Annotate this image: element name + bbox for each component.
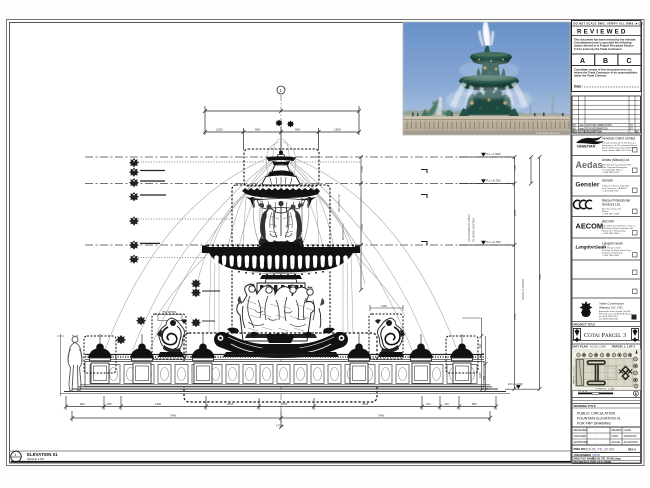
svg-text:0 5 10 20: 0 5 10 20	[578, 391, 588, 393]
svg-text:fax: (853) 2835 5052: fax: (853) 2835 5052	[599, 319, 619, 321]
svg-text:REV: REV	[573, 132, 578, 134]
svg-text:3150: 3150	[360, 223, 364, 230]
svg-text:DRAWN: DRAWN	[612, 428, 622, 432]
svg-text:C: C	[627, 58, 632, 65]
svg-text:7940: 7940	[378, 414, 385, 418]
svg-text:Venetian Orient Limited: Venetian Orient Limited	[602, 137, 635, 141]
svg-text:7900: 7900	[538, 273, 542, 280]
svg-text:5.4 for action by the Trade Co: 5.4 for action by the Trade Contractor.	[574, 47, 623, 51]
svg-text:17160: 17160	[276, 423, 284, 427]
svg-text:280: 280	[107, 402, 112, 406]
svg-text:KEY PLAN: KEY PLAN	[574, 345, 588, 349]
svg-text:1130: 1130	[479, 372, 482, 378]
svg-text:1200: 1200	[381, 304, 387, 308]
svg-text:CHECKED: CHECKED	[574, 434, 587, 438]
svg-text:SCALE 1:2000: SCALE 1:2000	[590, 346, 606, 349]
svg-text:1150: 1150	[360, 166, 364, 172]
svg-text:FRP FINISH TYP.: FRP FINISH TYP.	[339, 194, 341, 212]
svg-text:900: 900	[483, 375, 486, 380]
svg-text:FRP ORNAMENT FINISH: FRP ORNAMENT FINISH	[468, 214, 471, 242]
svg-text:(Macau) CO. LTD.: (Macau) CO. LTD.	[599, 306, 623, 310]
svg-text:10/04/2016: 10/04/2016	[624, 434, 638, 438]
svg-text:under the Trade Contract.: under the Trade Contract.	[574, 74, 607, 78]
svg-text:SCALE 1:50: SCALE 1:50	[27, 457, 44, 461]
svg-text:PUBLIC CIRCULATION: PUBLIC CIRCULATION	[577, 412, 615, 416]
svg-text:420: 420	[426, 402, 431, 406]
svg-text:BRONZE PAINT: BRONZE PAINT	[342, 223, 345, 240]
svg-text:Taipa, Macau SAR, P.R. China: Taipa, Macau SAR, P.R. China	[602, 149, 632, 152]
svg-text:JOB NUMBER: JOB NUMBER	[574, 453, 592, 457]
svg-text:2518: 2518	[281, 402, 288, 406]
svg-text:FOR INFORMATION: FOR INFORMATION	[586, 127, 608, 130]
svg-text:2000: 2000	[513, 209, 517, 216]
svg-text:1250: 1250	[334, 128, 341, 132]
svg-text:T.P.L +4,750: T.P.L +4,750	[484, 240, 501, 244]
svg-text:date: date	[579, 124, 584, 127]
svg-text:PROJECT TITLE: PROJECT TITLE	[574, 322, 596, 326]
svg-text:440: 440	[444, 402, 449, 406]
svg-text:REFERENCE DWG FILE NAME: REFERENCE DWG FILE NAME	[574, 460, 612, 464]
svg-text:2518: 2518	[227, 402, 234, 406]
svg-text:600: 600	[479, 343, 482, 348]
svg-text:© fountain reference: © fountain reference	[536, 131, 560, 135]
svg-text:AS SHOWN: AS SHOWN	[624, 440, 638, 444]
svg-text:SCALE: SCALE	[612, 440, 621, 444]
svg-text:PARCEL 1, LOT 1: PARCEL 1, LOT 1	[573, 366, 576, 384]
svg-text:GRAPHIC SCALE: GRAPHIC SCALE	[597, 387, 615, 390]
svg-text:APPROVED: APPROVED	[574, 440, 589, 444]
svg-text:CAHD: CAHD	[624, 428, 631, 432]
svg-text:-: -	[596, 429, 597, 432]
svg-text:TO MATCH EXISTING: TO MATCH EXISTING	[473, 218, 476, 242]
svg-text:t +853 2833 1022: t +853 2833 1022	[602, 171, 620, 174]
svg-text:t +853 2871 5339: t +853 2871 5339	[602, 213, 620, 216]
svg-text:A: A	[580, 58, 585, 65]
svg-text:600: 600	[80, 402, 85, 406]
svg-text:Aedas (Macau) Ltd.: Aedas (Macau) Ltd.	[602, 158, 630, 162]
svg-text:Langdon Seah: Langdon Seah	[602, 242, 623, 246]
svg-text:Services Ltd.: Services Ltd.	[602, 203, 621, 207]
svg-text:REVIEWED: REVIEWED	[577, 29, 628, 36]
svg-text:REV 0: REV 0	[628, 447, 637, 451]
svg-text:t +852 3922 9000: t +852 3922 9000	[602, 232, 620, 235]
svg-text:Gensler: Gensler	[576, 182, 600, 189]
svg-text:650: 650	[295, 128, 300, 132]
svg-text:COTAI PARCEL 3: COTAI PARCEL 3	[584, 332, 626, 339]
svg-text:-: -	[596, 441, 597, 444]
svg-text:t 1.415.433.3700: t 1.415.433.3700	[602, 190, 619, 193]
svg-text:AECOM: AECOM	[576, 222, 604, 231]
svg-text:DO NOT SCALE DWG. VERIFY ALL D: DO NOT SCALE DWG. VERIFY ALL DIMS. ■ CO.	[574, 22, 645, 26]
svg-text:4750: 4750	[513, 313, 517, 320]
svg-text:T.P.L +7,900: T.P.L +7,900	[484, 152, 501, 156]
svg-text:-: -	[596, 435, 597, 438]
svg-text:date: date	[579, 127, 584, 130]
svg-text:T.P.L +6,750: T.P.L +6,750	[484, 179, 501, 183]
svg-text:PARCEL 1, LOT 2: PARCEL 1, LOT 2	[612, 345, 635, 349]
svg-text:DRAWING TITLE: DRAWING TITLE	[574, 404, 596, 408]
svg-text:315/05: 315/05	[592, 453, 600, 457]
svg-text:t +852 2830 3500: t +852 2830 3500	[602, 254, 620, 257]
svg-text:DESIGNED: DESIGNED	[574, 428, 588, 432]
svg-text:315-05_PD_20-001.dwg: 315-05_PD_20-001.dwg	[592, 457, 621, 461]
svg-text:FOR FRP FABRICATION: FOR FRP FABRICATION	[586, 124, 612, 127]
svg-text:1250: 1250	[216, 128, 223, 132]
svg-text:FOR FRP DRAWING: FOR FRP DRAWING	[577, 422, 611, 426]
svg-text:Gensler: Gensler	[602, 179, 614, 183]
svg-text:VENETIAN: VENETIAN	[577, 145, 596, 149]
svg-text:860: 860	[472, 402, 477, 406]
svg-text:AECOM: AECOM	[602, 220, 614, 224]
svg-text:STONE CLADDING: STONE CLADDING	[522, 279, 525, 300]
svg-text:650: 650	[255, 128, 260, 132]
svg-text:F.F.L +0.00: F.F.L +0.00	[508, 382, 523, 386]
svg-text:DESCRIPTION: DESCRIPTION	[586, 132, 602, 134]
svg-text:FOUNTAIN ELEVATION 01: FOUNTAIN ELEVATION 01	[577, 417, 621, 421]
svg-text:315-05_PD_20-001: 315-05_PD_20-001	[585, 447, 615, 451]
svg-text:2518: 2518	[362, 402, 369, 406]
svg-text:B: B	[603, 58, 608, 65]
svg-text:DATE: DATE	[579, 131, 586, 134]
svg-text:Date :: Date :	[574, 85, 583, 89]
svg-text:Aedas: Aedas	[576, 160, 603, 170]
svg-text:DATE: DATE	[612, 434, 619, 438]
svg-text:1150: 1150	[513, 165, 517, 171]
svg-text:BY: BY	[636, 132, 640, 134]
svg-text:7940: 7940	[170, 414, 177, 418]
svg-text:1960: 1960	[155, 402, 162, 406]
